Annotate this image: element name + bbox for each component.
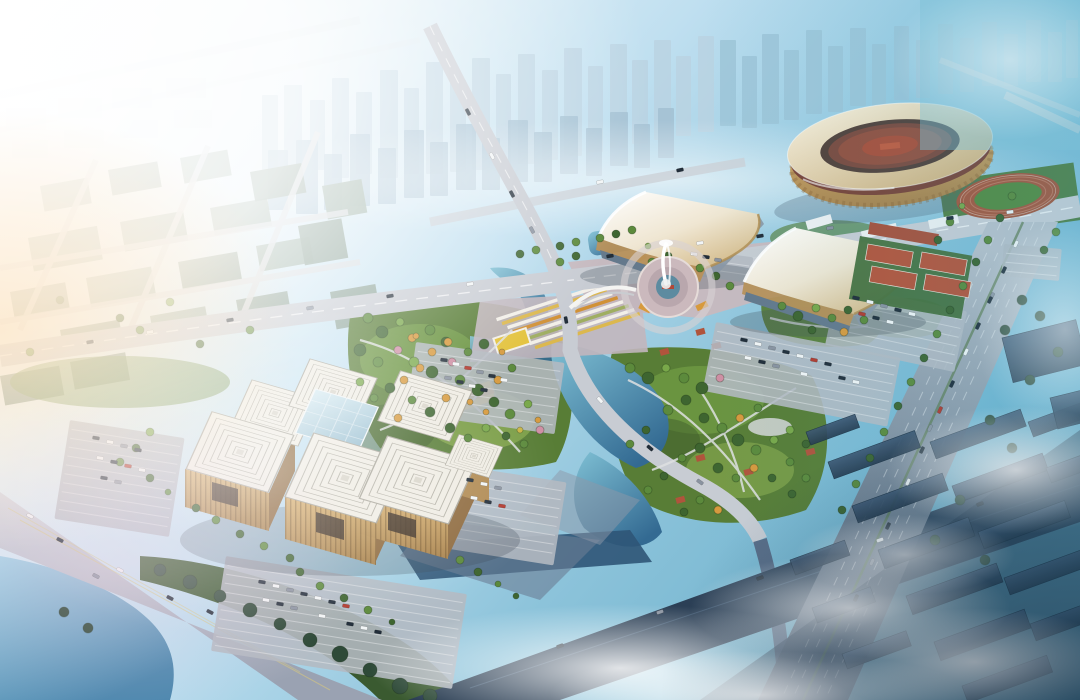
tree bbox=[513, 593, 519, 599]
tree bbox=[626, 440, 634, 448]
tree bbox=[642, 426, 650, 434]
aerial-rendering bbox=[0, 0, 1080, 700]
tree bbox=[681, 395, 691, 405]
tree bbox=[644, 486, 652, 494]
tree bbox=[625, 363, 635, 373]
tree bbox=[495, 581, 501, 587]
tree bbox=[628, 226, 636, 234]
tree bbox=[660, 472, 668, 480]
tree bbox=[680, 508, 688, 516]
tree bbox=[663, 405, 673, 415]
tree bbox=[332, 646, 348, 662]
tree bbox=[642, 372, 654, 384]
tree bbox=[679, 373, 689, 383]
rendering-canvas bbox=[0, 0, 1080, 700]
tree bbox=[662, 364, 670, 372]
tree bbox=[678, 454, 686, 462]
